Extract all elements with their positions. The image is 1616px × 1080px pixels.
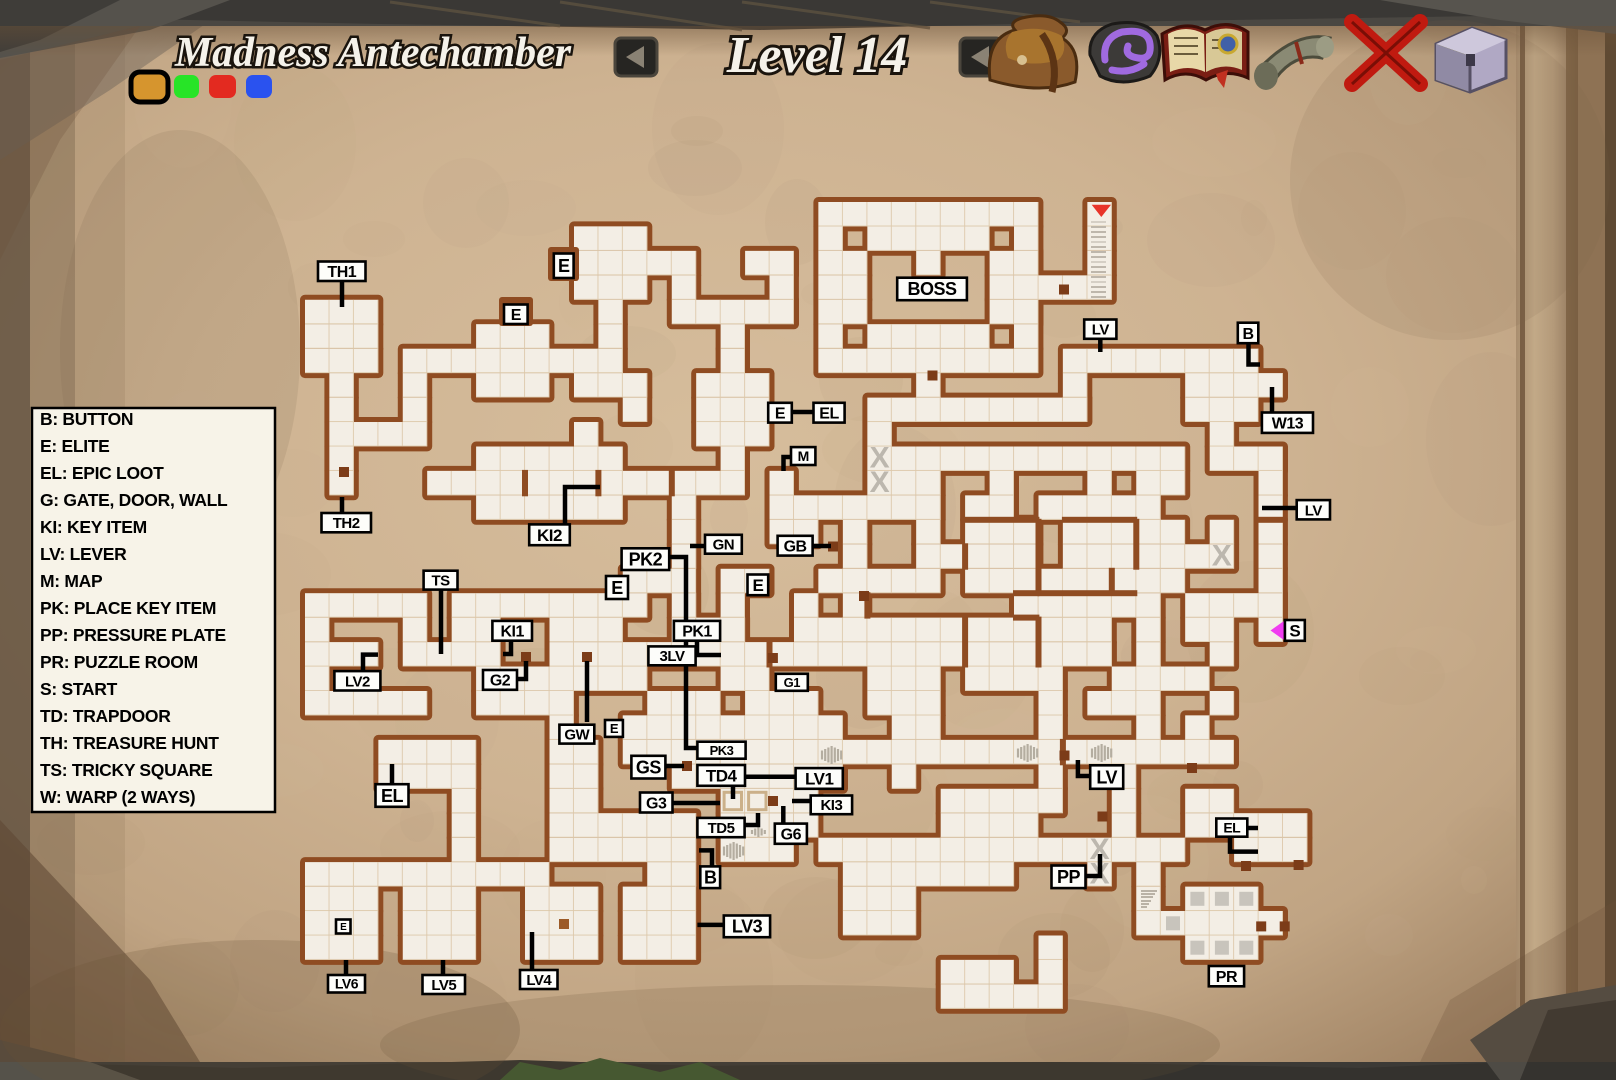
svg-text:LV3: LV3	[732, 917, 763, 937]
svg-text:LV6: LV6	[335, 976, 359, 992]
svg-text:G6: G6	[781, 827, 802, 844]
svg-text:X: X	[1212, 539, 1232, 572]
svg-text:LV: LEVER: LV: LEVER	[40, 544, 127, 564]
svg-text:M: M	[798, 448, 809, 464]
svg-text:EL: EL	[381, 786, 404, 806]
svg-text:LV2: LV2	[345, 673, 370, 690]
svg-text:E: E	[611, 578, 623, 598]
svg-text:3LV: 3LV	[660, 648, 685, 665]
svg-text:E: E	[511, 307, 522, 324]
svg-text:E: E	[775, 405, 786, 422]
svg-text:TD: TRAPDOOR: TD: TRAPDOOR	[40, 706, 171, 726]
svg-text:G3: G3	[646, 795, 667, 812]
svg-text:B: BUTTON: B: BUTTON	[40, 409, 133, 429]
svg-text:EL: EL	[819, 405, 839, 422]
svg-text:KI: KEY ITEM: KI: KEY ITEM	[40, 517, 147, 537]
svg-text:PP: PP	[1057, 867, 1081, 887]
svg-text:LV5: LV5	[431, 977, 456, 994]
svg-text:KI1: KI1	[500, 624, 524, 641]
svg-text:G: GATE, DOOR, WALL: G: GATE, DOOR, WALL	[40, 490, 228, 510]
svg-text:TH2: TH2	[333, 515, 360, 532]
svg-text:LV: LV	[1096, 767, 1117, 787]
svg-text:PK3: PK3	[710, 743, 734, 758]
svg-text:E: E	[340, 922, 347, 933]
svg-text:TD4: TD4	[706, 766, 738, 785]
svg-text:TH1: TH1	[327, 264, 356, 281]
svg-text:KI2: KI2	[537, 526, 562, 545]
svg-text:LV4: LV4	[526, 972, 552, 989]
svg-text:E: E	[752, 576, 763, 595]
svg-text:E: E	[610, 721, 619, 736]
svg-text:TS: TRICKY SQUARE: TS: TRICKY SQUARE	[40, 760, 213, 780]
svg-text:PK1: PK1	[682, 624, 712, 641]
svg-text:E: ELITE: E: ELITE	[40, 436, 110, 456]
svg-text:B: B	[1242, 326, 1253, 343]
svg-text:KI3: KI3	[820, 797, 842, 814]
svg-text:EL: EPIC LOOT: EL: EPIC LOOT	[40, 463, 164, 483]
svg-text:LV1: LV1	[805, 770, 833, 789]
svg-text:TD5: TD5	[708, 820, 735, 837]
svg-text:G1: G1	[784, 675, 801, 690]
svg-text:W13: W13	[1272, 416, 1304, 433]
svg-text:GN: GN	[713, 537, 735, 554]
svg-text:E: E	[558, 256, 570, 276]
svg-text:LV: LV	[1092, 322, 1110, 339]
svg-text:Madness Antechamber: Madness Antechamber	[174, 30, 572, 76]
svg-text:GW: GW	[564, 727, 590, 744]
svg-text:PR: PUZZLE ROOM: PR: PUZZLE ROOM	[40, 652, 198, 672]
svg-text:S: START: S: START	[40, 679, 118, 699]
svg-text:S: S	[1289, 621, 1300, 640]
svg-text:Level 14: Level 14	[726, 27, 907, 84]
svg-text:BOSS: BOSS	[907, 279, 957, 299]
svg-text:TH: TREASURE HUNT: TH: TREASURE HUNT	[40, 733, 219, 753]
svg-text:TS: TS	[432, 573, 451, 590]
svg-text:PR: PR	[1216, 969, 1238, 986]
svg-text:B: B	[704, 868, 717, 888]
svg-text:G2: G2	[490, 673, 511, 690]
svg-text:W: WARP (2 WAYS): W: WARP (2 WAYS)	[40, 787, 195, 807]
svg-text:M: MAP: M: MAP	[40, 571, 103, 591]
svg-text:X: X	[870, 466, 890, 499]
svg-text:GS: GS	[636, 757, 662, 777]
svg-text:PK: PLACE KEY ITEM: PK: PLACE KEY ITEM	[40, 598, 216, 618]
svg-text:LV: LV	[1305, 502, 1323, 519]
svg-text:GB: GB	[784, 538, 807, 555]
svg-text:PK2: PK2	[629, 549, 663, 569]
svg-text:EL: EL	[1223, 820, 1241, 836]
svg-text:PP: PRESSURE PLATE: PP: PRESSURE PLATE	[40, 625, 226, 645]
